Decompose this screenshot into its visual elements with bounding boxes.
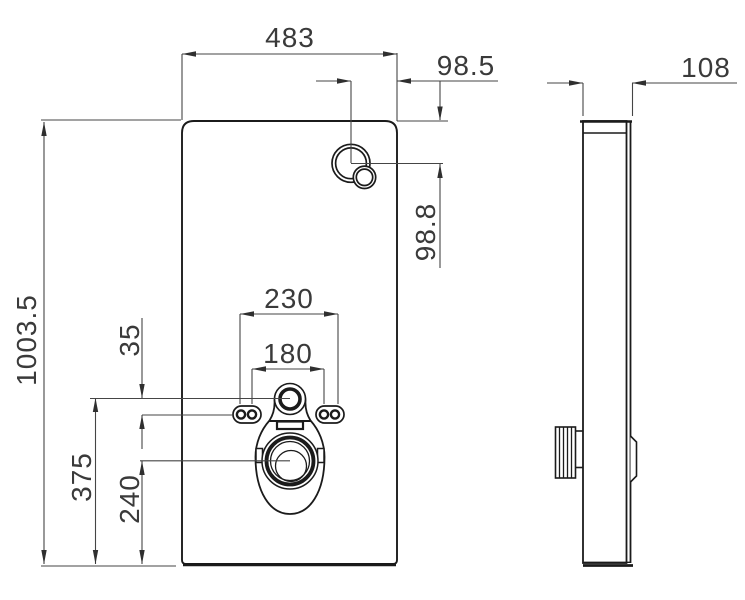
bolt-hole bbox=[237, 410, 245, 418]
dim-label-overall-height: 1003.5 bbox=[11, 294, 42, 386]
connector-ribbed-body bbox=[556, 427, 576, 478]
dim-module-depth: 108 bbox=[547, 52, 737, 116]
side-body bbox=[583, 121, 627, 563]
bolt-hole bbox=[331, 410, 339, 418]
dim-panel-width: 483 bbox=[182, 22, 397, 121]
bolt-hole bbox=[248, 410, 256, 418]
dim-label-water-offset-y: 98.8 bbox=[410, 203, 441, 262]
dim-label-bolt-spacing-inner: 180 bbox=[263, 338, 313, 369]
dim-label-module-depth: 108 bbox=[681, 52, 731, 83]
drawing-canvas: 483 98.5 98.8 1 bbox=[0, 0, 745, 600]
dim-label-bolt-spacing-outer: 230 bbox=[264, 283, 314, 314]
bolt-hole bbox=[320, 410, 328, 418]
clamp-plate bbox=[277, 422, 303, 430]
dim-label-panel-width: 483 bbox=[265, 22, 315, 53]
dim-label-drain-height: 240 bbox=[114, 474, 145, 524]
technical-drawing: 483 98.5 98.8 1 bbox=[0, 0, 745, 600]
side-view bbox=[556, 121, 637, 566]
dim-label-water-offset-x: 98.5 bbox=[437, 50, 496, 81]
dim-label-bolt-offset: 35 bbox=[114, 323, 145, 356]
flush-pipe-connector bbox=[556, 427, 584, 478]
dim-label-inlet-height: 375 bbox=[66, 452, 97, 502]
rear-outlet-stub bbox=[631, 436, 637, 482]
